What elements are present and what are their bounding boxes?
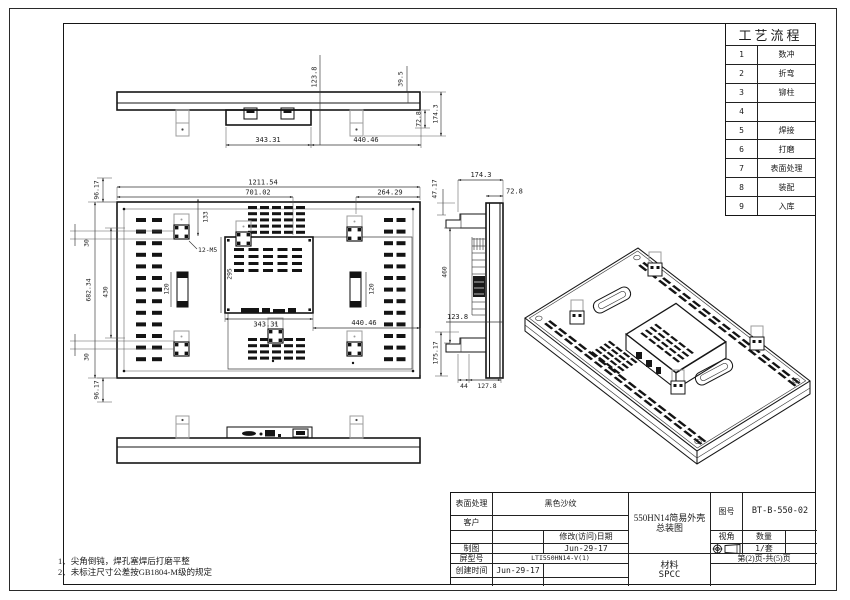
surface-label: 表面处理 (451, 493, 493, 516)
dim-label: 175.17 (432, 341, 440, 364)
back-view-dimensions: 1211.54 701.02 264.29 96.17 682.34 430 3… (70, 178, 420, 402)
qty-value: 1/套 (743, 544, 786, 554)
dim-label: 30 (83, 239, 91, 247)
empty-cell (493, 544, 544, 554)
io-connectors (242, 429, 308, 437)
dim-label: 96.17 (93, 180, 101, 199)
dim-label: 343.31 (255, 136, 280, 144)
process-name: 铆柱 (758, 84, 815, 102)
first-angle-projection-icon (712, 544, 742, 554)
dim-label: 120 (368, 283, 376, 295)
empty-cell (786, 531, 817, 544)
isometric-view (525, 248, 810, 464)
surface-value: 黑色沙纹 (493, 493, 629, 516)
process-name: 装配 (758, 178, 815, 196)
process-no: 8 (726, 178, 758, 196)
center-box (225, 237, 313, 313)
side-view-louvers (472, 237, 486, 315)
modify-date-label: 修改(访问)日期 (544, 531, 629, 544)
process-flow-table: 工艺流程 1数冲 2折弯 3铆柱 4 5焊接 6打磨 7表面处理 8装配 9入库 (725, 23, 816, 216)
dim-label: 127.8 (477, 382, 496, 390)
empty-cell (786, 544, 817, 554)
bottom-view (117, 416, 420, 463)
drawing-no-value: BT-B-550-02 (743, 493, 817, 531)
bracket-top-left (174, 214, 189, 239)
iso-bracket-3 (750, 326, 764, 350)
customer-label: 客户 (451, 516, 493, 531)
dim-label: 440.46 (353, 136, 378, 144)
iso-center-box (626, 303, 726, 389)
create-label: 创建时间 (451, 564, 493, 578)
side-view: 174.3 72.8 47.17 460 123.8 175.17 44 127… (431, 171, 523, 390)
drawing-title-line2: 总装图 (656, 523, 683, 533)
top-vent-grid (248, 206, 305, 234)
iso-handle-1 (591, 285, 632, 315)
empty-cell (544, 578, 629, 586)
dim-label: 460 (441, 266, 449, 278)
dim-label: 1211.54 (248, 179, 278, 187)
dim-label: 72.8 (415, 111, 423, 127)
process-row: 2折弯 (726, 65, 815, 84)
process-no: 5 (726, 122, 758, 140)
empty-cell (493, 531, 544, 544)
dim-label: 123.8 (447, 313, 468, 321)
iso-bracket-1 (648, 252, 662, 276)
dim-label: 264.29 (377, 189, 402, 197)
process-row: 3铆柱 (726, 84, 815, 103)
empty-cell (451, 531, 493, 544)
left-vent-grid (136, 218, 162, 361)
drawing-title: 550HN14简易外壳 总装图 (629, 493, 711, 554)
note-line: 1、尖角倒钝，焊孔塞焊后打磨平整 (58, 556, 338, 567)
process-name: 数冲 (758, 46, 815, 64)
empty-cell (544, 564, 629, 578)
draft-label: 制图 (451, 544, 493, 554)
dim-label: 430 (102, 286, 110, 298)
process-row: 1数冲 (726, 46, 815, 65)
process-no: 7 (726, 159, 758, 177)
drawing-title-line1: 550HN14简易外壳 (634, 513, 706, 523)
empty-cell (711, 564, 817, 586)
process-row: 6打磨 (726, 140, 815, 159)
dim-label: 133 (202, 211, 210, 223)
process-no: 3 (726, 84, 758, 102)
process-no: 2 (726, 65, 758, 83)
dim-label: 30 (83, 353, 91, 361)
dim-label: 72.8 (506, 188, 523, 196)
note-line: 2、未标注尺寸公差按GB1804-M级的规定 (58, 567, 338, 578)
slot-right (350, 272, 361, 307)
slot-left (177, 272, 188, 307)
iso-bracket-2 (570, 300, 584, 324)
bracket-bottom-right (347, 331, 362, 356)
model-value: LTI550HN14-V(1) (493, 554, 629, 564)
title-block: 表面处理 黑色沙纹 客户 修改(访问)日期 制图 Jun-29-17 屏型号 L… (450, 492, 816, 585)
dim-label: 701.02 (245, 189, 270, 197)
top-view: 123.8 39.5 72.8 174.3 343.31 440.46 (117, 55, 446, 148)
dim-label: 12-M5 (198, 246, 217, 254)
process-name (758, 103, 815, 121)
customer-value (493, 516, 629, 531)
dim-label: 682.34 (85, 278, 93, 301)
dim-label: 120 (163, 283, 171, 295)
process-no: 9 (726, 197, 758, 215)
process-row: 9入库 (726, 197, 815, 215)
process-row: 5焊接 (726, 122, 815, 141)
qty-label: 数量 (743, 531, 786, 544)
material-label: 材料 (660, 560, 678, 570)
bracket-bottom-left (174, 331, 189, 356)
dim-label: 174.3 (432, 104, 440, 123)
process-row: 4 (726, 103, 815, 122)
model-label: 屏型号 (451, 554, 493, 564)
top-view-bracket-left (176, 110, 189, 136)
process-name: 入库 (758, 197, 815, 215)
dim-label: 39.5 (397, 71, 405, 87)
process-no: 1 (726, 46, 758, 64)
drawing-no-label: 图号 (711, 493, 743, 531)
process-flow-title: 工艺流程 (726, 24, 815, 46)
general-notes: 1、尖角倒钝，焊孔塞焊后打磨平整 2、未标注尺寸公差按GB1804-M级的规定 (58, 556, 338, 578)
dim-label: 96.17 (93, 380, 101, 399)
process-name: 折弯 (758, 65, 815, 83)
center-box-vents (234, 248, 302, 272)
process-no: 4 (726, 103, 758, 121)
dim-label: 440.46 (351, 319, 376, 327)
empty-cell (493, 578, 544, 586)
process-name: 表面处理 (758, 159, 815, 177)
dim-label: 343.31 (253, 321, 278, 329)
page-info: 第(2)页-共(5)页 (711, 554, 817, 564)
dim-label: 44 (460, 382, 468, 390)
process-row: 7表面处理 (726, 159, 815, 178)
process-name: 打磨 (758, 140, 815, 158)
dim-label: 47.17 (431, 179, 439, 198)
top-view-bracket-right (350, 110, 363, 136)
process-no: 6 (726, 140, 758, 158)
empty-cell (451, 578, 493, 586)
drawing-sheet: { "process_table": { "title": "工艺流程", "r… (0, 0, 850, 600)
draft-date: Jun-29-17 (544, 544, 629, 554)
projection-symbol-cell (711, 544, 743, 554)
process-row: 8装配 (726, 178, 815, 197)
material-cell: 材料 SPCC (629, 554, 711, 586)
back-view: 1211.54 701.02 264.29 96.17 682.34 430 3… (70, 178, 420, 402)
bracket-top-right (347, 216, 362, 241)
material-value: SPCC (659, 570, 681, 580)
dim-label: 174.3 (470, 171, 491, 179)
process-name: 焊接 (758, 122, 815, 140)
bottom-view-bracket-right (350, 416, 363, 438)
top-view-dimensions: 123.8 39.5 72.8 174.3 343.31 440.46 (226, 55, 446, 148)
bottom-view-bracket-left (176, 416, 189, 438)
create-date: Jun-29-17 (493, 564, 544, 578)
right-vent-grid (384, 218, 406, 361)
dim-label: 123.8 (311, 66, 319, 87)
view-angle-label: 视角 (711, 531, 743, 544)
dim-label: 295 (226, 268, 234, 280)
